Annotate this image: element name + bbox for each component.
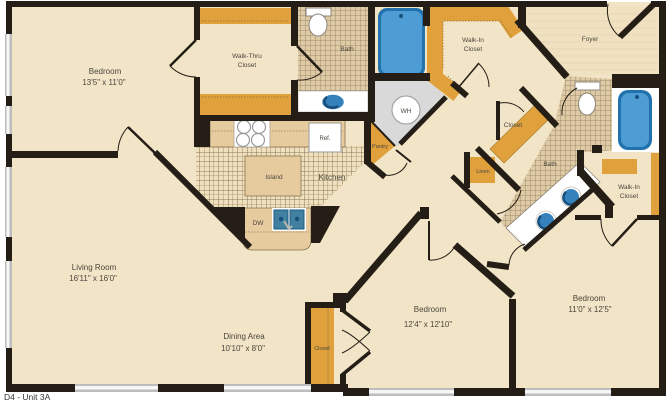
svg-text:Walk-Thru: Walk-Thru bbox=[232, 53, 262, 60]
svg-text:Closet: Closet bbox=[238, 62, 257, 69]
svg-text:D4 - Unit 3A: D4 - Unit 3A bbox=[4, 392, 51, 402]
svg-text:Linen: Linen bbox=[476, 169, 489, 175]
svg-text:Walk-In: Walk-In bbox=[462, 37, 484, 44]
svg-text:Closet: Closet bbox=[620, 193, 639, 200]
svg-text:Walk-In: Walk-In bbox=[618, 184, 640, 191]
svg-text:12'4" x 12'10": 12'4" x 12'10" bbox=[404, 320, 452, 329]
svg-text:Bath: Bath bbox=[543, 161, 557, 168]
svg-text:Bedroom: Bedroom bbox=[89, 67, 122, 76]
svg-text:Dining Area: Dining Area bbox=[223, 332, 265, 341]
svg-text:Island: Island bbox=[265, 174, 283, 181]
svg-text:Closet: Closet bbox=[314, 346, 330, 352]
svg-text:Foyer: Foyer bbox=[582, 36, 599, 43]
svg-text:Bath: Bath bbox=[340, 46, 354, 53]
svg-text:11'0" x 12'5": 11'0" x 12'5" bbox=[568, 305, 611, 314]
svg-text:Bedroom: Bedroom bbox=[414, 305, 447, 314]
svg-text:16'11" x 16'0": 16'11" x 16'0" bbox=[69, 274, 117, 283]
svg-text:13'5" x 11'0": 13'5" x 11'0" bbox=[82, 78, 125, 87]
svg-text:Kitchen: Kitchen bbox=[319, 173, 346, 182]
svg-text:Ref.: Ref. bbox=[319, 136, 330, 142]
svg-text:WH: WH bbox=[401, 108, 412, 115]
svg-text:Bedroom: Bedroom bbox=[573, 294, 606, 303]
svg-text:Closet: Closet bbox=[504, 122, 523, 129]
svg-text:Closet: Closet bbox=[464, 46, 483, 53]
svg-text:DW: DW bbox=[253, 220, 265, 227]
svg-text:10'10" x 8'0": 10'10" x 8'0" bbox=[221, 344, 265, 353]
svg-text:Pantry: Pantry bbox=[372, 144, 388, 150]
svg-text:Living Room: Living Room bbox=[72, 263, 117, 272]
